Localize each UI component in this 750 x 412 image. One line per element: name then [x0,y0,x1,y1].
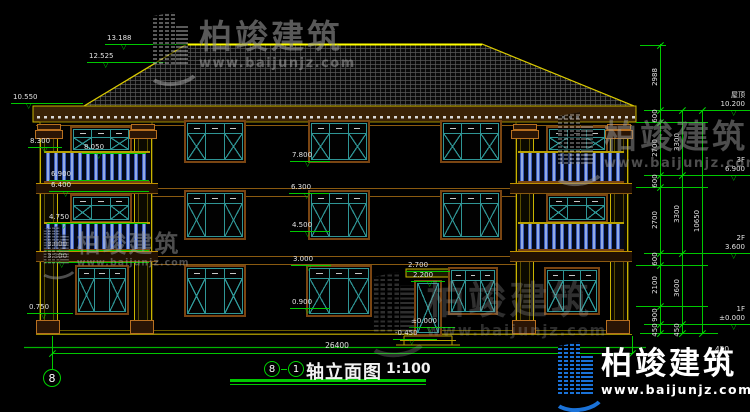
elevation-marker-icon: ▽ [41,313,46,320]
level-marker-icon: ▽ [731,253,736,260]
level-value: 10.200 [645,100,745,108]
dimension-text: 26400 [325,341,349,350]
elevation-label: 10.550 [13,93,38,101]
watermark-building-icon [40,226,72,274]
elevation-label: 4.750 [49,213,69,221]
elevation-label: 2.700 [408,261,428,269]
watermark: 柏竣建筑www.baijunjz.com [368,272,607,348]
window [306,265,372,317]
window [70,194,132,223]
pilaster-base [606,320,630,334]
dimension-text: 3300 [673,205,681,223]
watermark-building-icon [368,272,419,348]
pilaster-base [36,320,60,334]
axis-bubble-8: 8 [43,369,61,387]
watermark-url: www.baijunjz.com [427,322,607,339]
elevation-marker-icon: ▽ [305,231,310,238]
window [546,194,608,223]
drawing-scale: 1:100 [386,361,431,377]
elevation-label: 8.300 [30,137,50,145]
level-marker-icon: ▽ [731,324,736,331]
window [440,190,502,240]
watermark-url: www.baijunjz.com [77,257,190,268]
watermark-brand: 柏竣建筑 [604,120,750,153]
dimension-text: 900 [651,308,659,321]
watermark-url: www.baijunjz.com [604,156,750,171]
elevation-label: 12.525 [89,52,114,60]
elevation-marker-icon: ▽ [26,103,31,110]
elevation-marker-line [27,313,73,314]
elevation-label: 4.500 [292,221,312,229]
window [184,190,246,240]
watermark: 柏竣建筑www.baijunjz.com [40,226,190,274]
elevation-marker-icon: ▽ [121,44,126,51]
elevation-marker-icon: ▽ [305,161,310,168]
dimension-text: 3600 [673,279,681,297]
brand-url: www.baijunjz.com [601,382,750,397]
window [440,120,502,163]
dimension-text: 2700 [651,211,659,229]
title-axis-bubble-start: 8 [264,361,280,377]
watermark-brand: 柏竣建筑 [77,231,190,255]
level-name: 屋顶 [645,91,745,99]
window [308,120,370,163]
title-axis-bubble-end: 1 [288,361,304,377]
elevation-marker-icon: ▽ [63,191,68,198]
balcony-railing [518,222,624,251]
level-value: 3.600 [645,243,745,251]
dimension-text: 2100 [651,276,659,294]
elevation-marker-icon: ▽ [305,308,310,315]
brand-building-icon [553,342,595,404]
window [308,190,370,240]
cad-elevation-drawing: 8 8 1 轴立面图 1:100 柏竣建筑 www.baijunjz.com ▽… [0,0,750,412]
elevation-label: 0.750 [29,303,49,311]
window [184,120,246,163]
elevation-label: 6.400 [51,181,71,189]
brand-name: 柏竣建筑 [601,349,750,380]
dimension-text: 10650 [693,210,701,232]
watermark: 柏竣建筑www.baijunjz.com [148,12,356,78]
extension-line [52,353,632,354]
elevation-label: 6.300 [291,183,311,191]
elevation-label: 13.188 [107,34,132,42]
watermark-brand: 柏竣建筑 [427,281,607,319]
watermark-brand: 柏竣建筑 [199,20,356,53]
title-axis-dash [281,369,287,370]
drawing-title: 轴立面图 [306,358,382,384]
elevation-marker-icon: ▽ [96,153,101,160]
elevation-marker-icon: ▽ [306,265,311,272]
watermark-building-icon [553,112,597,178]
elevation-marker-line [82,153,146,154]
elevation-label: 8.050 [84,143,104,151]
watermark: 柏竣建筑www.baijunjz.com [553,112,750,178]
elevation-marker-icon: ▽ [103,62,108,69]
watermark-url: www.baijunjz.com [199,56,356,71]
extension-line [636,187,708,188]
elevation-label: 3.000 [293,255,313,263]
elevation-marker-icon: ▽ [42,147,47,154]
brand-logo: 柏竣建筑 www.baijunjz.com [553,342,750,404]
pilaster-capital [511,130,539,139]
pilaster-base [130,320,154,334]
elevation-label: 6.900 [51,170,71,178]
elevation-label: 7.800 [292,151,312,159]
watermark-building-icon [148,12,192,78]
elevation-label: 0.900 [292,298,312,306]
pilaster-capital [129,130,157,139]
elevation-marker-icon: ▽ [304,193,309,200]
elevation-marker-line [11,103,83,104]
balcony-slab [510,251,632,262]
extension-line [636,265,708,266]
level-name: 2F [645,234,745,242]
extension-line [640,45,666,46]
dimension-text: 2988 [651,68,659,86]
level-value: ±0.000 [645,314,745,322]
window [184,265,246,317]
title-underline [230,384,426,385]
